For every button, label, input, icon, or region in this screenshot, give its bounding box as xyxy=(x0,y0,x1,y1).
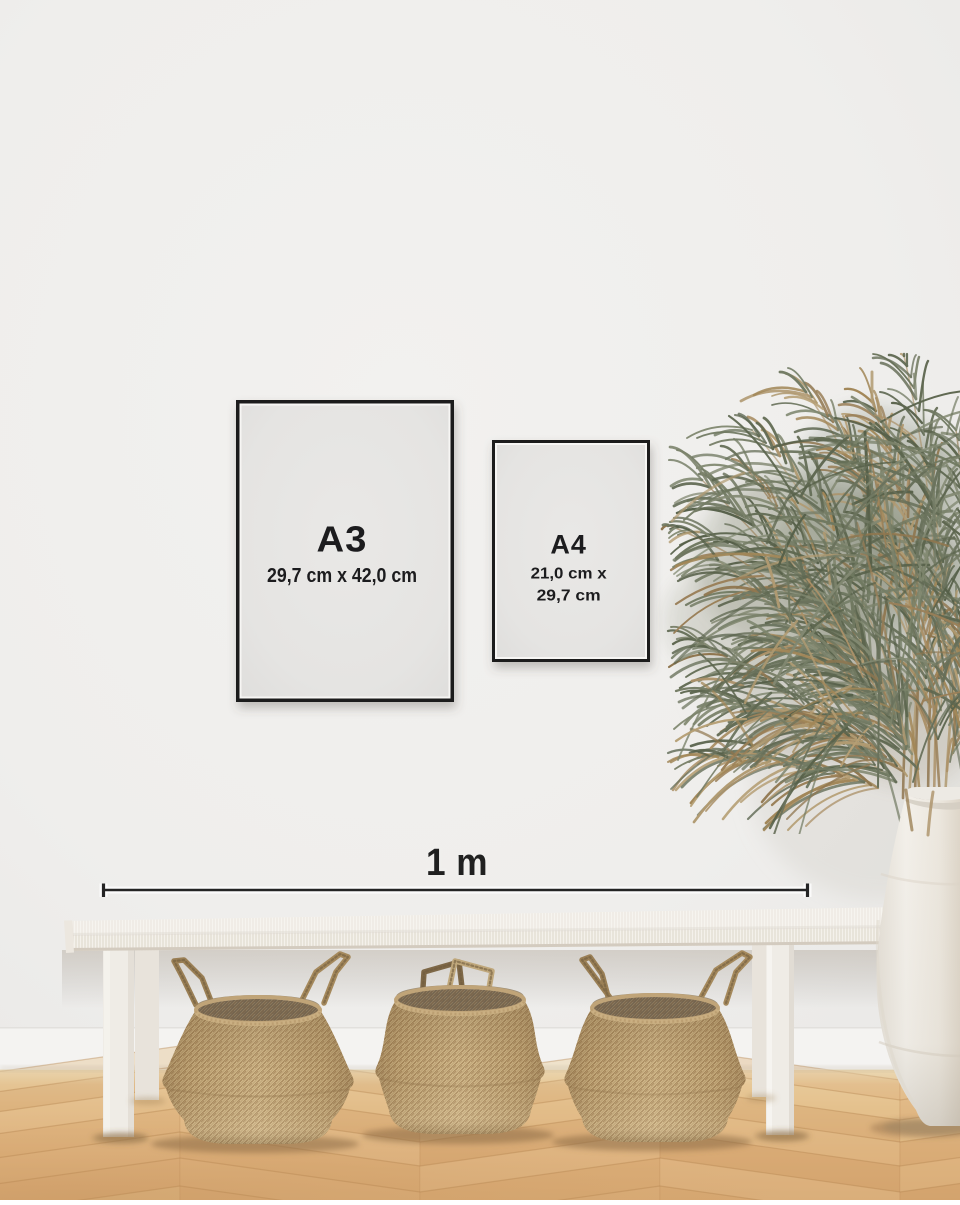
svg-text:29,7 cm x 42,0 cm: 29,7 cm x 42,0 cm xyxy=(267,565,417,587)
svg-text:A4: A4 xyxy=(550,530,587,560)
svg-text:1 m: 1 m xyxy=(426,842,488,884)
svg-text:29,7 cm: 29,7 cm xyxy=(537,588,601,605)
svg-text:21,0 cm x: 21,0 cm x xyxy=(531,566,607,583)
svg-text:A3: A3 xyxy=(317,519,368,560)
